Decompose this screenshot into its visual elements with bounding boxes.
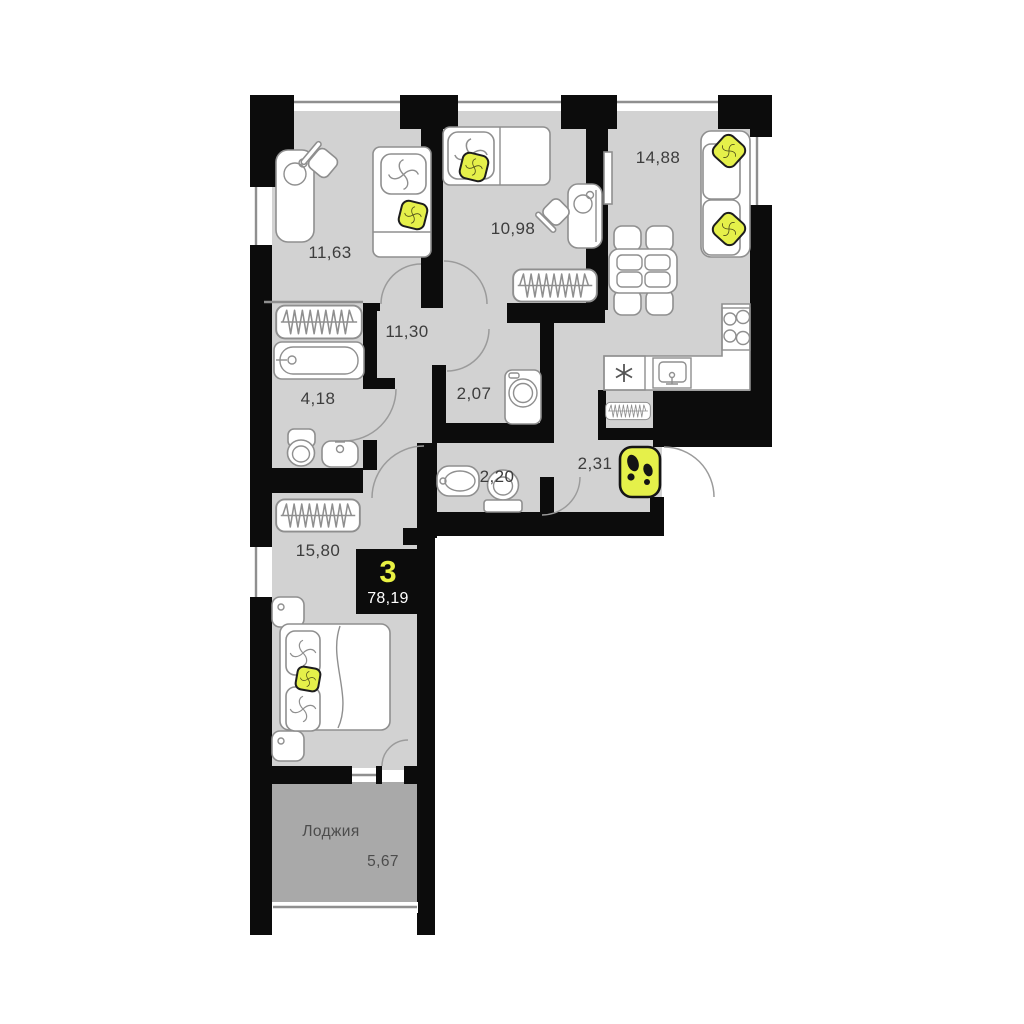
window-living-top — [617, 95, 718, 111]
room-label-loggia: 5,67 — [367, 853, 399, 871]
toilet-room-furniture — [505, 370, 541, 424]
entrance-footprints-icon — [620, 447, 660, 497]
toilet — [288, 429, 316, 466]
double-bed — [280, 624, 390, 731]
window-living-right — [750, 137, 772, 205]
room-label-bedroom-1: 11,63 — [308, 243, 351, 263]
accent-pillow — [458, 151, 490, 183]
accent-pillow — [397, 199, 429, 231]
bathtub — [274, 342, 364, 379]
door-leaf-living — [604, 152, 612, 204]
entry-closet — [606, 402, 651, 419]
sink — [437, 466, 479, 496]
sofa — [701, 131, 750, 257]
pillow — [286, 687, 320, 731]
floor-plan-drawing — [0, 0, 1024, 1024]
loggia-name-label: Лоджия — [302, 823, 359, 841]
window-bedroom1-left — [250, 187, 272, 245]
room-label-wc: 2,20 — [480, 467, 515, 487]
room-label-toilet: 2,07 — [457, 384, 492, 404]
pillow — [381, 154, 426, 194]
window-bedroom2-top — [458, 95, 561, 111]
room-label-living-kitchen: 14,88 — [636, 148, 681, 168]
room-label-bathroom: 4,18 — [301, 389, 336, 409]
desk — [568, 184, 602, 248]
hall-closet — [276, 306, 362, 339]
ventilation-shaft — [653, 391, 752, 435]
total-area: 78,19 — [367, 591, 409, 607]
apartment-badge: 3 78,19 — [356, 549, 420, 614]
window-balcony — [352, 768, 376, 782]
window-bedroom1-top — [294, 95, 400, 111]
sink — [322, 441, 358, 467]
room-label-bedroom-3: 15,80 — [296, 541, 341, 561]
room-label-hall: 2,31 — [578, 454, 613, 474]
rooms-count: 3 — [379, 556, 396, 587]
washing-machine — [505, 370, 541, 424]
single-bed — [373, 147, 431, 257]
accent-pillow — [295, 666, 322, 693]
room-label-bedroom-2: 10,98 — [491, 219, 536, 239]
nightstand — [272, 597, 304, 627]
wardrobe — [276, 499, 360, 531]
room-label-corridor: 11,30 — [385, 322, 428, 342]
wardrobe — [513, 269, 597, 301]
single-bed — [443, 127, 550, 185]
window-bedroom3-left — [250, 547, 272, 597]
nightstand — [272, 731, 304, 761]
floor-loggia — [264, 782, 417, 906]
door-arc-entrance — [664, 447, 714, 497]
loggia-glazing — [272, 902, 418, 913]
floor-plan: 11,63 10,98 14,88 11,30 4,18 2,07 2,20 2… — [0, 0, 1024, 1024]
